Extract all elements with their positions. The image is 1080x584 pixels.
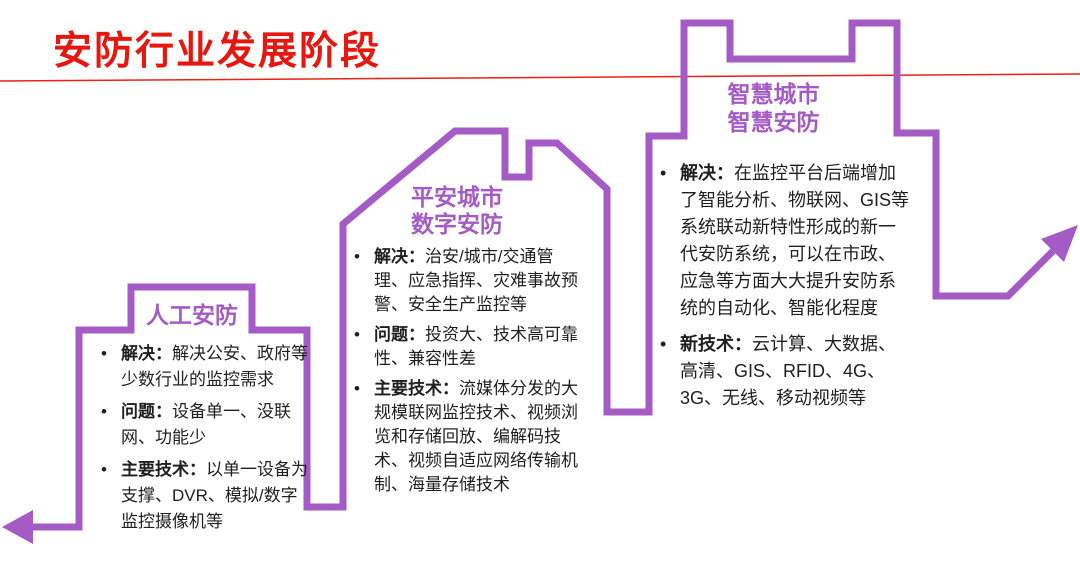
stage-bullets-manual-security: 解决：解决公安、政府等少数行业的监控需求问题：设备单一、没联网、功能少主要技术：… xyxy=(97,341,309,541)
bullet-item: 主要技术：以单一设备为支撑、DVR、模拟/数字监控摄像机等 xyxy=(97,457,309,535)
stage-title-smart-city-smart-security: 智慧城市智慧安防 xyxy=(691,80,856,136)
bullet-item: 问题：设备单一、没联网、功能少 xyxy=(97,399,309,451)
stage-title-line: 平安城市 xyxy=(375,184,539,211)
stage-title-line: 智慧城市 xyxy=(691,80,856,108)
bullet-label: 解决： xyxy=(374,247,425,266)
bullet-item: 解决：解决公安、政府等少数行业的监控需求 xyxy=(97,341,309,393)
bullet-label: 解决： xyxy=(680,163,734,183)
bullet-item: 新技术：云计算、大数据、高清、GIS、RFID、4G、3G、无线、移动视频等 xyxy=(656,331,910,412)
stage-title-safe-city-digital-security: 平安城市数字安防 xyxy=(375,184,539,238)
stage-title-line: 数字安防 xyxy=(375,211,539,238)
bullet-label: 问题： xyxy=(374,325,425,344)
stage-title-line: 智慧安防 xyxy=(691,108,856,136)
left-arrowhead-icon xyxy=(2,510,33,544)
slide-canvas: 安防行业发展阶段 人工安防 解决：解决公安、政府等少数行业的监控需求问题：设备单… xyxy=(0,0,1080,584)
bullet-label: 主要技术： xyxy=(121,460,206,479)
bullet-label: 主要技术： xyxy=(374,379,459,398)
bullet-item: 问题：投资大、技术高可靠性、兼容性差 xyxy=(350,323,586,371)
bullet-item: 解决：在监控平台后端增加了智能分析、物联网、GIS等系统联动新特性形成的新一代安… xyxy=(656,160,910,322)
bullet-item: 解决：治安/城市/交通管理、应急指挥、灾难事故预警、安全生产监控等 xyxy=(350,245,586,317)
stage-title-manual-security: 人工安防 xyxy=(128,302,256,329)
bullet-label: 新技术： xyxy=(680,334,752,354)
stage-bullets-safe-city-digital-security: 解决：治安/城市/交通管理、应急指挥、灾难事故预警、安全生产监控等问题：投资大、… xyxy=(350,245,586,503)
bullet-label: 解决： xyxy=(121,344,172,363)
page-title: 安防行业发展阶段 xyxy=(53,20,381,76)
bullet-label: 问题： xyxy=(121,402,172,421)
bullet-item: 主要技术：流媒体分发的大规模联网监控技术、视频浏览和存储回放、编解码技术、视频自… xyxy=(350,377,586,497)
stage-bullets-smart-city-smart-security: 解决：在监控平台后端增加了智能分析、物联网、GIS等系统联动新特性形成的新一代安… xyxy=(656,160,910,421)
stage-title-line: 人工安防 xyxy=(128,302,256,329)
